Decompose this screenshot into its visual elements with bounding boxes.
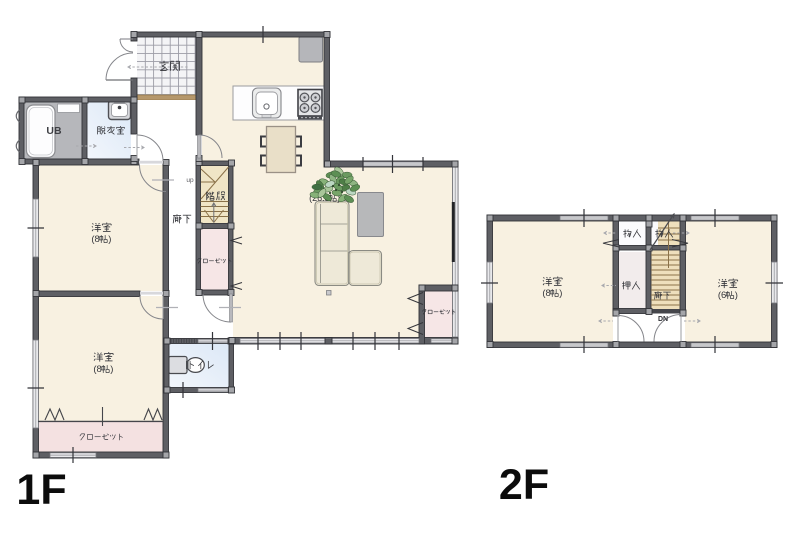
svg-text:(6: (6 (718, 290, 726, 301)
svg-text:): ) (110, 364, 113, 375)
svg-text:2F: 2F (499, 461, 549, 509)
svg-text:(8: (8 (542, 288, 550, 299)
svg-text:1F: 1F (16, 466, 66, 514)
svg-text:up: up (186, 177, 194, 184)
svg-text:): ) (559, 288, 562, 299)
svg-text:): ) (735, 290, 738, 301)
svg-text:(8: (8 (91, 234, 99, 245)
svg-text:DN: DN (658, 316, 668, 323)
svg-text:): ) (108, 234, 111, 245)
svg-text:(8: (8 (93, 364, 101, 375)
svg-text:UB: UB (46, 125, 62, 137)
